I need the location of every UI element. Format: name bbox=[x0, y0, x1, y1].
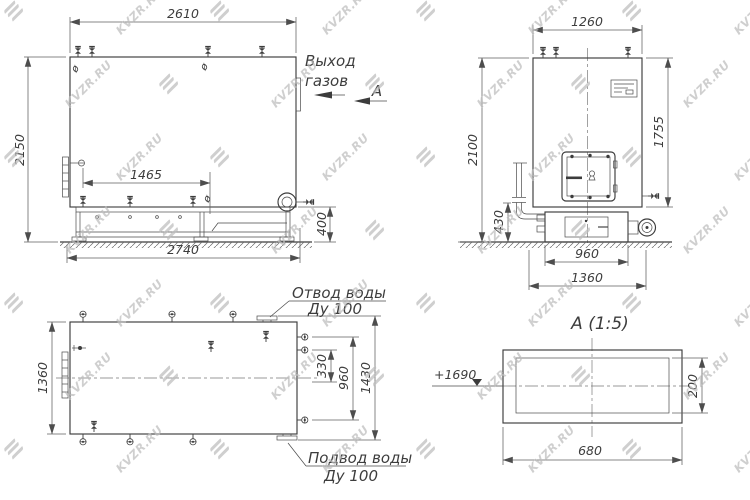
svg-text:газов: газов bbox=[305, 72, 348, 90]
drain-valve-icon bbox=[190, 197, 196, 207]
svg-text:400: 400 bbox=[314, 212, 329, 236]
svg-text:200: 200 bbox=[685, 374, 700, 398]
fan bbox=[628, 219, 656, 236]
nozzle-valve-icon bbox=[127, 434, 133, 445]
diameter-mark: ø bbox=[69, 63, 83, 76]
valve-icon bbox=[75, 47, 81, 57]
valve-icon bbox=[259, 47, 265, 57]
dimension-1755: 1755 bbox=[646, 58, 673, 207]
valve-icon bbox=[89, 47, 95, 57]
svg-text:Подвод воды: Подвод воды bbox=[308, 449, 412, 467]
drain-valve-icon bbox=[127, 197, 133, 207]
valve-icon bbox=[205, 47, 211, 57]
level-valve-icon bbox=[70, 160, 85, 166]
svg-text:960: 960 bbox=[575, 246, 599, 261]
valve-icon bbox=[91, 422, 97, 432]
blower-side bbox=[278, 193, 303, 211]
valve-icon bbox=[208, 342, 214, 352]
valve-icon bbox=[263, 332, 269, 342]
side-view: ø ø ø bbox=[12, 6, 387, 263]
svg-text:430: 430 bbox=[491, 210, 506, 234]
side-left-bracket bbox=[63, 157, 69, 197]
nozzle-valve-icon bbox=[80, 434, 86, 445]
boiler-body-side bbox=[70, 57, 296, 207]
technical-drawing: ø ø ø bbox=[0, 0, 750, 500]
svg-text:1260: 1260 bbox=[571, 14, 603, 29]
drain-pipe bbox=[512, 163, 545, 219]
duct-inner bbox=[516, 358, 669, 413]
svg-text:А: А bbox=[371, 82, 382, 100]
left-fitting-icon bbox=[72, 345, 86, 351]
gas-flow-arrow-icon bbox=[314, 92, 332, 99]
front-view: 1260 2100 1755 430 960 bbox=[458, 14, 673, 290]
nozzle-valve-icon bbox=[190, 434, 196, 445]
section-title: А (1:5) bbox=[570, 314, 629, 334]
nozzle-valve-icon bbox=[169, 311, 175, 322]
svg-text:1360: 1360 bbox=[35, 362, 50, 394]
dimension-960: 960 bbox=[545, 245, 628, 266]
svg-text:Ду 100: Ду 100 bbox=[307, 300, 362, 318]
svg-text:960: 960 bbox=[336, 366, 351, 390]
dimension-330: 330 bbox=[312, 350, 337, 382]
level-arrow-icon bbox=[472, 379, 482, 386]
drawing-svg: ø ø ø bbox=[0, 0, 750, 500]
svg-text:680: 680 bbox=[578, 443, 602, 458]
side-fitting-icon bbox=[297, 334, 308, 340]
section-mark-A: А bbox=[354, 82, 387, 105]
side-fitting-icon bbox=[297, 347, 308, 353]
nozzle-valve-icon bbox=[80, 311, 86, 322]
svg-text:1465: 1465 bbox=[130, 167, 162, 182]
plan-view: 1360 330 960 1430 Отвод воды Ду 100 bbox=[35, 284, 412, 485]
plan-left-bracket bbox=[62, 352, 68, 398]
ground-line bbox=[460, 242, 672, 248]
fire-door bbox=[562, 152, 617, 201]
svg-text:1360: 1360 bbox=[571, 270, 603, 285]
nozzle-valve-icon bbox=[230, 311, 236, 322]
diameter-mark: ø bbox=[198, 61, 212, 74]
section-arrow-icon bbox=[354, 97, 370, 104]
valve-icon bbox=[553, 48, 559, 58]
dimension-430: 430 bbox=[491, 203, 511, 242]
gas-outlet-flange bbox=[296, 78, 301, 111]
section-view: А (1:5) +1690 200 680 bbox=[432, 314, 708, 465]
side-fitting-icon bbox=[297, 417, 308, 423]
duct-outer bbox=[503, 350, 682, 423]
furnace-base bbox=[537, 212, 628, 242]
diameter-mark: ø bbox=[201, 193, 215, 206]
svg-text:1755: 1755 bbox=[651, 116, 666, 148]
svg-text:Выход: Выход bbox=[305, 52, 356, 70]
svg-text:2740: 2740 bbox=[167, 242, 199, 257]
svg-text:1430: 1430 bbox=[358, 362, 373, 394]
water-outlet-label: Отвод воды Ду 100 bbox=[270, 284, 386, 318]
water-outlet-flange bbox=[257, 316, 277, 322]
dimension-680: 680 bbox=[503, 427, 682, 465]
nameplate bbox=[611, 80, 637, 97]
skid-frame bbox=[72, 207, 294, 241]
valve-icon bbox=[648, 193, 658, 199]
svg-text:2100: 2100 bbox=[465, 134, 480, 166]
door-handle bbox=[566, 177, 582, 180]
gas-outlet-label: Выход газов bbox=[305, 52, 356, 99]
dimension-2150: 2150 bbox=[12, 57, 66, 242]
valve-icon bbox=[303, 199, 313, 205]
svg-text:Ду 100: Ду 100 bbox=[323, 467, 378, 485]
svg-text:+1690: +1690 bbox=[434, 367, 476, 382]
svg-text:2150: 2150 bbox=[12, 134, 27, 166]
dimension-200: 200 bbox=[672, 358, 708, 413]
drain-valve-icon bbox=[80, 197, 86, 207]
sight-hole-icon bbox=[589, 171, 594, 176]
svg-text:330: 330 bbox=[314, 354, 329, 378]
level-mark: +1690 bbox=[432, 367, 503, 386]
water-inlet-label: Подвод воды Ду 100 bbox=[288, 443, 412, 485]
valve-icon bbox=[540, 48, 546, 58]
valve-icon bbox=[625, 48, 631, 58]
dimension-400: 400 bbox=[298, 207, 336, 242]
svg-text:2610: 2610 bbox=[167, 6, 199, 21]
water-inlet-flange bbox=[277, 434, 297, 440]
